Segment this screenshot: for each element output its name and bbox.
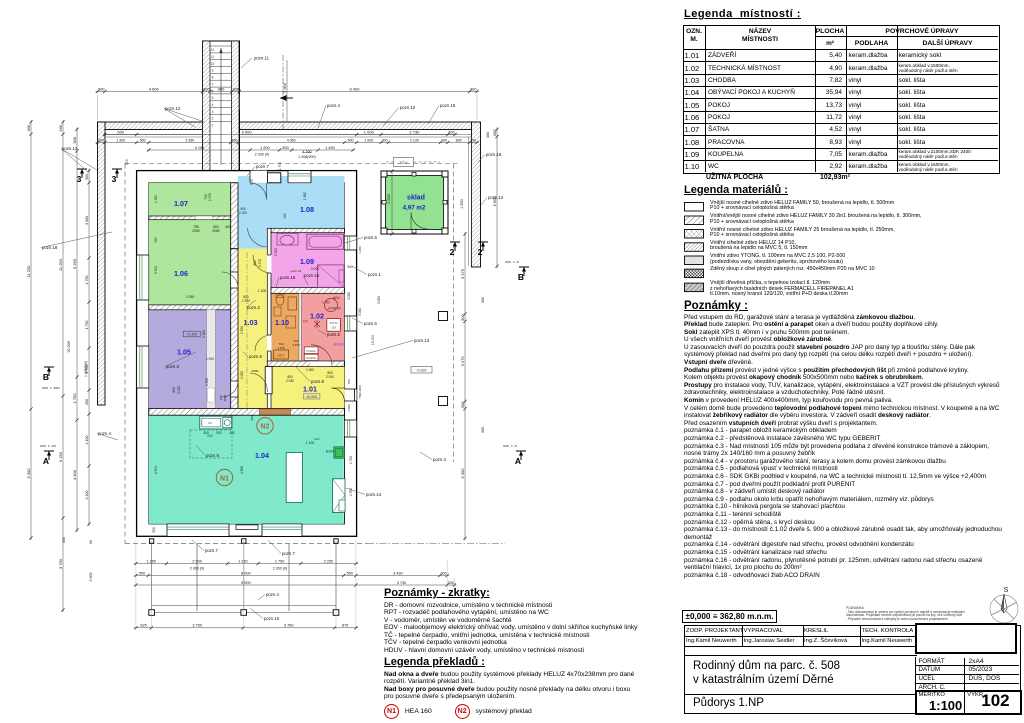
svg-text:3 000: 3 000 <box>377 296 381 304</box>
svg-text:3 000: 3 000 <box>311 267 320 271</box>
svg-text:1 200: 1 200 <box>202 330 206 338</box>
svg-text:500: 500 <box>125 159 129 165</box>
svg-text:2 300 (0): 2 300 (0) <box>255 153 270 157</box>
svg-text:2 300 (0): 2 300 (0) <box>273 567 287 571</box>
svg-text:2 550: 2 550 <box>387 194 391 204</box>
svg-text:EOV: EOV <box>326 450 334 454</box>
svg-text:875: 875 <box>342 624 348 628</box>
svg-text:pozn.12: pozn.12 <box>488 195 504 200</box>
svg-text:300: 300 <box>492 129 497 136</box>
svg-text:1 750: 1 750 <box>275 559 285 563</box>
svg-text:1.06: 1.06 <box>174 269 188 278</box>
svg-text:500: 500 <box>152 527 156 533</box>
svg-text:3: 3 <box>77 174 82 184</box>
svg-text:500: 500 <box>348 139 354 143</box>
svg-text:2 730: 2 730 <box>409 130 420 135</box>
svg-text:9 250: 9 250 <box>72 258 77 269</box>
svg-text:B: B <box>518 272 524 282</box>
svg-text:500: 500 <box>347 571 353 575</box>
svg-text:1.02: 1.02 <box>310 312 324 321</box>
svg-text:pozn.5: pozn.5 <box>327 332 341 337</box>
svg-text:300: 300 <box>460 313 465 320</box>
svg-text:pozn.7: pozn.7 <box>205 548 219 553</box>
svg-text:300: 300 <box>441 139 447 143</box>
svg-text:300: 300 <box>481 427 485 433</box>
svg-text:pozn.14: pozn.14 <box>366 492 382 497</box>
svg-text:pozn.16: pozn.16 <box>280 275 296 280</box>
svg-text:1 500: 1 500 <box>347 404 351 412</box>
svg-text:1.10: 1.10 <box>275 318 289 327</box>
svg-text:1 350: 1 350 <box>154 195 158 204</box>
svg-text:3 000: 3 000 <box>347 292 351 300</box>
svg-text:110: 110 <box>331 326 336 330</box>
svg-text:900: 900 <box>72 136 77 143</box>
svg-text:1 970: 1 970 <box>242 299 250 303</box>
svg-text:2 020: 2 020 <box>177 386 181 394</box>
svg-text:3 275: 3 275 <box>460 356 465 367</box>
svg-text:DR: DR <box>303 319 308 323</box>
svg-text:1 700: 1 700 <box>278 162 282 171</box>
svg-text:1 970: 1 970 <box>292 343 300 347</box>
svg-text:1 408(900): 1 408(900) <box>298 155 315 159</box>
svg-text:1.01: 1.01 <box>303 385 317 394</box>
svg-text:1 000: 1 000 <box>240 371 244 379</box>
svg-text:pozn.12: pozn.12 <box>400 105 416 110</box>
svg-text:11 250: 11 250 <box>58 258 63 271</box>
svg-text:2 400: 2 400 <box>85 491 89 500</box>
svg-text:2 250: 2 250 <box>324 559 334 563</box>
svg-text:6 250: 6 250 <box>58 451 63 462</box>
svg-text:sklad: sklad <box>407 195 425 202</box>
svg-text:11 250: 11 250 <box>26 265 31 278</box>
svg-text:1 750: 1 750 <box>85 276 89 285</box>
svg-text:Sušička: Sušička <box>306 356 317 360</box>
svg-text:1 400(900): 1 400(900) <box>84 361 88 377</box>
svg-text:9: 9 <box>212 69 214 73</box>
svg-text:500: 500 <box>140 139 146 143</box>
svg-text:4,97 m2: 4,97 m2 <box>403 205 426 212</box>
svg-text:1.07: 1.07 <box>174 199 188 208</box>
svg-text:5 300: 5 300 <box>460 468 465 479</box>
svg-text:1 450: 1 450 <box>325 146 335 150</box>
svg-text:+2,400: +2,400 <box>186 333 197 337</box>
svg-text:4 500: 4 500 <box>72 469 77 480</box>
svg-text:1 100: 1 100 <box>306 441 315 445</box>
svg-text:pozn.8: pozn.8 <box>311 379 325 384</box>
svg-text:1 970: 1 970 <box>208 193 212 201</box>
svg-text:1.08: 1.08 <box>300 205 314 214</box>
svg-text:SVPA 40: SVPA 40 <box>328 307 341 311</box>
svg-text:1 970: 1 970 <box>277 346 285 350</box>
svg-text:pozn.2: pozn.2 <box>247 305 261 310</box>
svg-text:2: 2 <box>478 247 483 257</box>
svg-text:pozn.10: pozn.10 <box>264 616 280 621</box>
svg-text:500: 500 <box>139 571 145 575</box>
svg-text:2 000: 2 000 <box>326 375 334 379</box>
svg-text:pozn.6: pozn.6 <box>249 354 263 359</box>
svg-text:760(1300): 760(1300) <box>358 385 362 399</box>
svg-text:300: 300 <box>231 139 237 143</box>
svg-text:±0,000: ±0,000 <box>306 395 317 399</box>
svg-text:2 100: 2 100 <box>85 436 89 445</box>
svg-text:500: 500 <box>117 130 124 135</box>
svg-text:pozn.4: pozn.4 <box>266 592 280 597</box>
svg-text:3 500: 3 500 <box>154 266 158 275</box>
svg-text:1 200: 1 200 <box>358 246 362 254</box>
svg-text:pozn.4: pozn.4 <box>98 431 112 436</box>
svg-text:3 275: 3 275 <box>460 268 465 279</box>
svg-text:250: 250 <box>85 399 89 405</box>
svg-text:500: 500 <box>62 537 66 543</box>
svg-text:pozn.7: pozn.7 <box>256 164 270 169</box>
svg-text:4 500: 4 500 <box>240 466 244 474</box>
svg-text:7: 7 <box>212 82 214 86</box>
svg-text:3 750: 3 750 <box>58 558 63 569</box>
svg-text:3 750: 3 750 <box>192 624 202 628</box>
svg-text:500: 500 <box>85 174 89 180</box>
svg-text:15 000: 15 000 <box>67 341 71 353</box>
svg-text:1 850: 1 850 <box>303 192 307 201</box>
svg-text:9 420: 9 420 <box>349 86 360 91</box>
svg-text:pozn.15: pozn.15 <box>304 273 320 278</box>
svg-text:5 300: 5 300 <box>26 468 31 479</box>
svg-text:1 750: 1 750 <box>85 321 89 330</box>
svg-text:B: B <box>43 372 49 382</box>
svg-text:HDUV: HDUV <box>334 343 345 347</box>
svg-text:1 000: 1 000 <box>364 139 373 143</box>
svg-text:pozn.4: pozn.4 <box>327 103 341 108</box>
svg-text:800: 800 <box>253 260 257 266</box>
svg-text:A: A <box>43 456 49 466</box>
svg-text:3 750: 3 750 <box>284 624 294 628</box>
svg-text:2: 2 <box>450 247 455 257</box>
svg-text:1: 1 <box>212 124 214 128</box>
svg-text:900: 900 <box>216 431 222 435</box>
svg-text:pozn.3: pozn.3 <box>166 364 180 369</box>
svg-text:2 250: 2 250 <box>240 326 244 334</box>
svg-text:2 350: 2 350 <box>274 248 278 256</box>
svg-text:1 950: 1 950 <box>460 199 464 209</box>
svg-text:1 000: 1 000 <box>206 357 214 361</box>
svg-text:2 020: 2 020 <box>239 211 247 215</box>
svg-text:9 000: 9 000 <box>242 130 253 135</box>
svg-text:80: 80 <box>89 540 93 544</box>
svg-text:1 300: 1 300 <box>116 139 125 143</box>
svg-text:A: A <box>515 456 521 466</box>
svg-text:3 430: 3 430 <box>393 571 403 575</box>
svg-text:pozn.18: pozn.18 <box>486 152 502 157</box>
svg-text:900: 900 <box>250 415 254 420</box>
svg-text:3 000: 3 000 <box>358 308 362 316</box>
svg-text:8: 8 <box>212 76 214 80</box>
svg-text:3 350: 3 350 <box>185 139 194 143</box>
svg-text:300: 300 <box>26 124 31 131</box>
svg-text:1.04: 1.04 <box>255 451 269 460</box>
svg-text:300: 300 <box>440 571 446 575</box>
svg-text:8 000: 8 000 <box>241 571 251 575</box>
svg-text:1 000: 1 000 <box>306 368 314 372</box>
svg-text:2080: 2080 <box>212 229 220 233</box>
svg-text:1 250: 1 250 <box>146 559 156 563</box>
svg-text:4 500: 4 500 <box>154 466 158 475</box>
svg-text:300: 300 <box>203 86 210 91</box>
svg-text:1 200: 1 200 <box>205 378 209 386</box>
svg-text:1 200: 1 200 <box>260 146 270 150</box>
svg-text:pozn.4: pozn.4 <box>433 457 447 462</box>
svg-text:3 600: 3 600 <box>85 216 89 225</box>
svg-text:300: 300 <box>382 139 388 143</box>
svg-text:750: 750 <box>347 379 351 384</box>
svg-text:pozn.16: pozn.16 <box>291 269 302 273</box>
svg-text:2080: 2080 <box>252 369 259 373</box>
svg-text:450: 450 <box>225 225 231 229</box>
svg-text:pozn.1: pozn.1 <box>368 272 382 277</box>
svg-text:300: 300 <box>448 130 455 135</box>
svg-text:150: 150 <box>283 213 287 219</box>
svg-text:KK: KK <box>208 421 212 425</box>
svg-text:4 150: 4 150 <box>195 146 205 150</box>
svg-text:890: 890 <box>456 139 462 143</box>
svg-text:4: 4 <box>212 103 214 107</box>
svg-text:400: 400 <box>203 431 209 435</box>
svg-text:1 250: 1 250 <box>238 559 248 563</box>
svg-text:150: 150 <box>154 237 158 243</box>
svg-text:pozn.13: pozn.13 <box>414 338 430 343</box>
svg-text:3: 3 <box>212 110 214 114</box>
svg-text:ZTUV: ZTUV <box>330 321 338 325</box>
svg-text:2 500: 2 500 <box>192 559 202 563</box>
svg-text:400: 400 <box>229 431 235 435</box>
svg-text:300: 300 <box>486 132 490 138</box>
svg-text:11: 11 <box>211 55 215 59</box>
svg-text:300: 300 <box>232 86 239 91</box>
svg-text:3: 3 <box>112 174 117 184</box>
svg-text:RPT: RPT <box>277 354 285 358</box>
svg-text:1 000: 1 000 <box>364 130 375 135</box>
svg-text:2080: 2080 <box>192 229 200 233</box>
svg-text:300: 300 <box>98 86 105 91</box>
svg-text:15 000: 15 000 <box>371 335 375 345</box>
svg-text:Pračka: Pračka <box>307 349 316 353</box>
svg-text:1.09: 1.09 <box>300 257 314 266</box>
svg-text:2 130: 2 130 <box>410 139 419 143</box>
svg-text:500: 500 <box>282 146 288 150</box>
svg-text:500: 500 <box>58 124 63 131</box>
svg-text:S: S <box>1004 587 1009 594</box>
svg-text:pozn.11: pozn.11 <box>254 56 270 61</box>
svg-text:N1: N1 <box>220 475 229 482</box>
svg-text:10: 10 <box>211 62 215 66</box>
svg-text:1 750: 1 750 <box>349 456 353 464</box>
svg-text:TČV: TČV <box>400 160 408 165</box>
svg-text:300: 300 <box>470 86 477 91</box>
svg-text:N2: N2 <box>261 424 270 431</box>
svg-text:pozn.6: pozn.6 <box>364 321 378 326</box>
svg-text:2080: 2080 <box>223 394 227 401</box>
svg-text:2 300 (0): 2 300 (0) <box>190 567 204 571</box>
svg-text:AKU: AKU <box>333 296 341 300</box>
svg-text:500: 500 <box>250 179 254 185</box>
svg-text:pozn.9: pozn.9 <box>206 453 220 458</box>
svg-text:pozn.18: pozn.18 <box>440 103 456 108</box>
svg-text:1.03: 1.03 <box>244 318 258 327</box>
svg-text:-0,020: -0,020 <box>416 369 426 373</box>
svg-text:625: 625 <box>140 624 146 628</box>
svg-text:3 730: 3 730 <box>397 581 407 585</box>
svg-text:900: 900 <box>218 86 225 91</box>
svg-text:2: 2 <box>212 117 214 121</box>
svg-text:1 200: 1 200 <box>258 289 267 293</box>
svg-text:2 030: 2 030 <box>286 379 294 383</box>
svg-text:3 350: 3 350 <box>186 295 195 299</box>
svg-text:300: 300 <box>460 401 465 408</box>
svg-text:pozn.6: pozn.6 <box>364 235 378 240</box>
svg-text:300: 300 <box>448 581 454 585</box>
svg-text:4 700: 4 700 <box>302 150 311 154</box>
svg-text:500: 500 <box>347 265 353 269</box>
svg-text:3 000: 3 000 <box>89 573 93 582</box>
svg-text:5: 5 <box>212 96 214 100</box>
svg-text:4 350: 4 350 <box>287 139 296 143</box>
svg-text:pozn.7: pozn.7 <box>282 551 296 556</box>
svg-text:12: 12 <box>211 48 215 52</box>
svg-text:9 000: 9 000 <box>241 581 251 585</box>
svg-text:1 750: 1 750 <box>322 301 330 305</box>
svg-text:1 750: 1 750 <box>72 393 77 404</box>
svg-text:800: 800 <box>172 387 176 393</box>
svg-text:4 000: 4 000 <box>149 86 160 91</box>
svg-text:300: 300 <box>481 297 485 303</box>
svg-text:1 970: 1 970 <box>258 259 262 267</box>
svg-text:300: 300 <box>98 139 104 143</box>
svg-text:300: 300 <box>470 139 476 143</box>
